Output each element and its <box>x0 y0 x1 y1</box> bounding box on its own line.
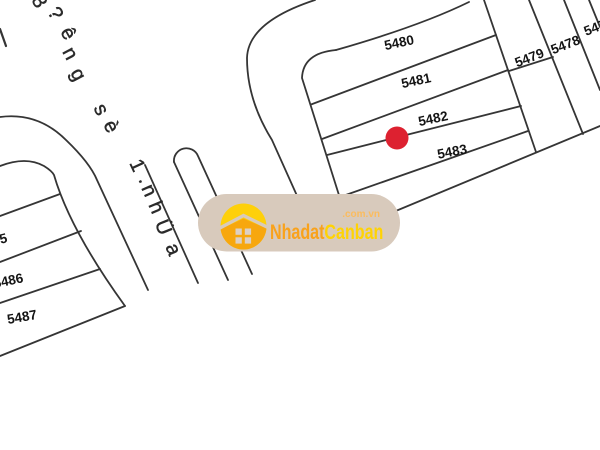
svg-text:.com.vn: .com.vn <box>342 209 380 220</box>
svg-text:NhadatCanban: NhadatCanban <box>270 220 383 244</box>
